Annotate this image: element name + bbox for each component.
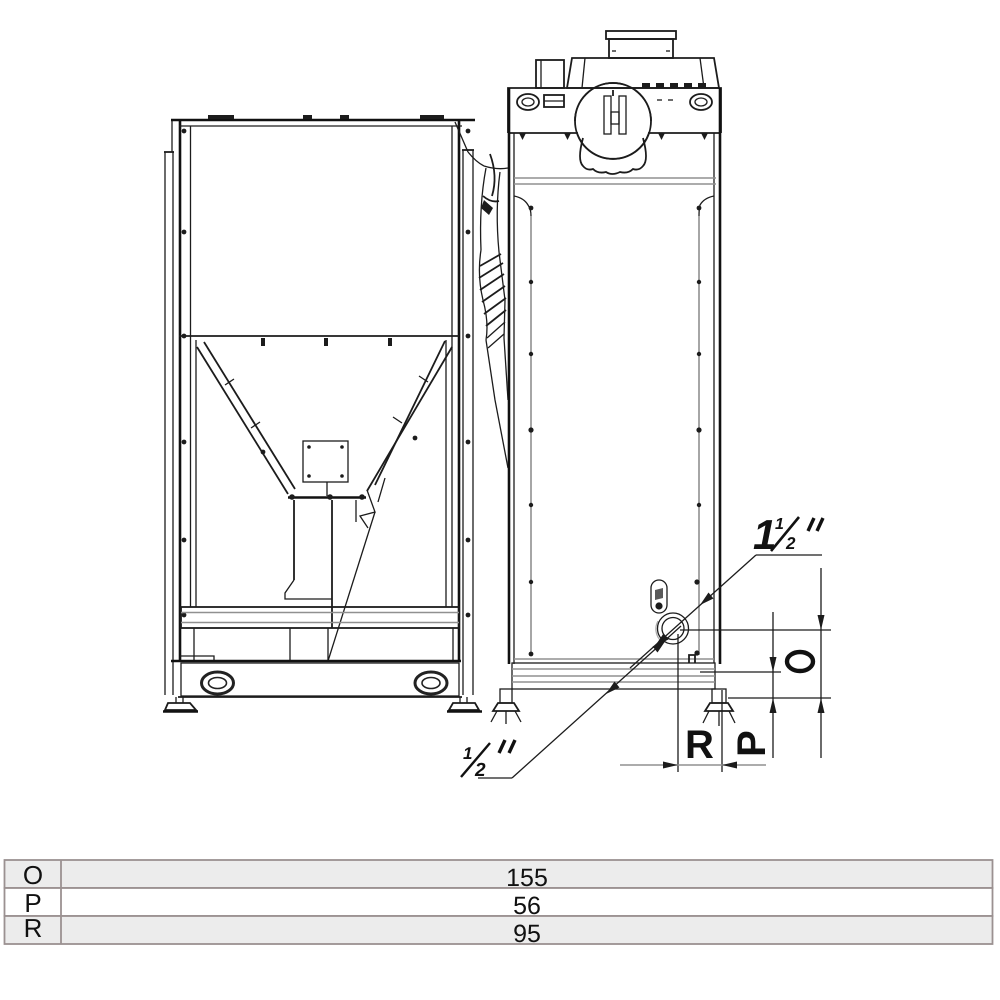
svg-text:R: R: [685, 723, 714, 767]
svg-text:1: 1: [775, 516, 784, 533]
svg-text:95: 95: [513, 920, 541, 948]
svg-text:R: R: [24, 913, 43, 943]
svg-text:2: 2: [785, 534, 796, 553]
svg-text:155: 155: [506, 864, 548, 892]
svg-text:O: O: [23, 860, 43, 890]
svg-text:1: 1: [463, 744, 472, 763]
svg-text:56: 56: [513, 892, 541, 920]
svg-text:2: 2: [474, 760, 486, 781]
svg-text:P: P: [730, 730, 774, 757]
svg-text:1: 1: [753, 511, 776, 558]
